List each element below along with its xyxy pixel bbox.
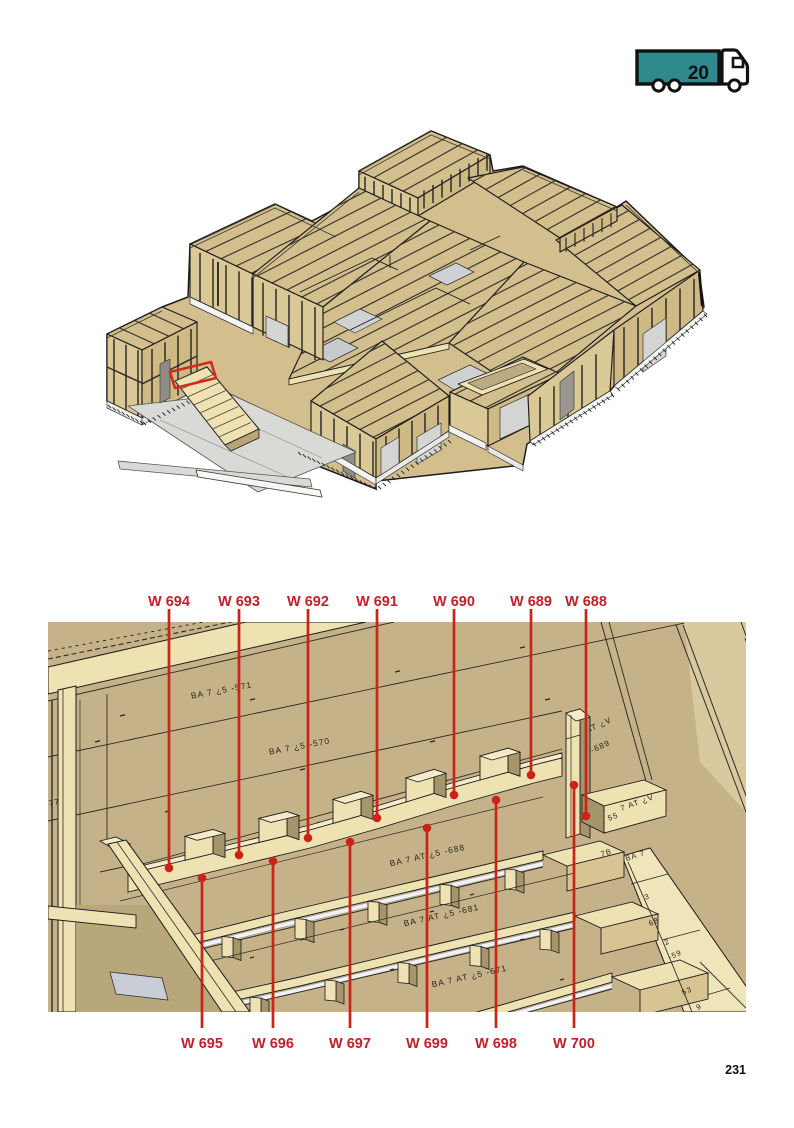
svg-text:231: 231 <box>725 1063 746 1077</box>
svg-text:W 690: W 690 <box>433 594 475 610</box>
svg-text:W 688: W 688 <box>565 594 607 610</box>
svg-text:W 698: W 698 <box>475 1036 517 1052</box>
svg-text:W 696: W 696 <box>252 1036 294 1052</box>
svg-text:W 700: W 700 <box>553 1036 595 1052</box>
svg-text:W 699: W 699 <box>406 1036 448 1052</box>
svg-text:W 697: W 697 <box>329 1036 371 1052</box>
svg-text:W 693: W 693 <box>218 594 260 610</box>
svg-text:20: 20 <box>688 63 709 84</box>
svg-text:W 691: W 691 <box>356 594 398 610</box>
svg-text:W 689: W 689 <box>510 594 552 610</box>
svg-text:W 692: W 692 <box>287 594 329 610</box>
svg-text:W 694: W 694 <box>148 594 190 610</box>
svg-text:W 695: W 695 <box>181 1036 223 1052</box>
